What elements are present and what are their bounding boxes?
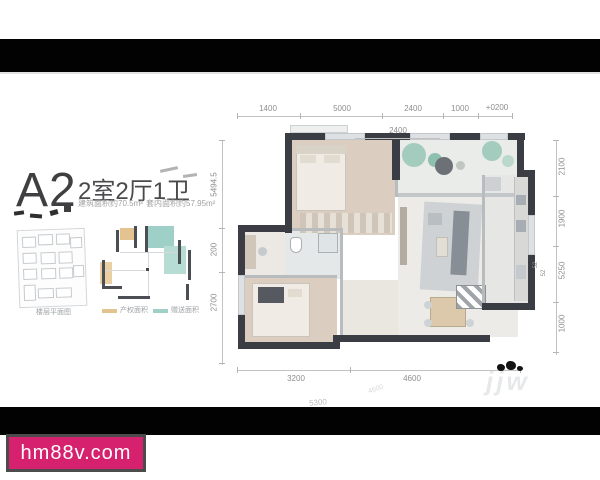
partition <box>285 228 343 231</box>
dim-tick <box>382 113 383 119</box>
coffee-table <box>436 237 448 257</box>
ghost-watermark: jjw <box>486 366 530 397</box>
site-plan-thumbnail <box>17 228 88 308</box>
plant <box>482 141 502 161</box>
key-wall <box>102 260 105 286</box>
fridge <box>485 177 501 191</box>
site-unit-box <box>38 288 54 299</box>
teal-area-patch <box>164 246 186 274</box>
key-dot <box>146 268 149 271</box>
dim-tick <box>553 196 559 197</box>
dim-label: 2400 <box>380 126 416 135</box>
watermark-box: hm88v.com <box>6 434 146 472</box>
site-unit-box <box>70 237 82 248</box>
site-unit-box <box>22 237 36 248</box>
key-wall <box>102 286 122 289</box>
dim-label: 1900 <box>558 203 567 235</box>
dim-label: 1400 <box>250 104 286 113</box>
site-unit-box <box>38 234 53 246</box>
dim-label: 2400 <box>395 104 431 113</box>
wall-segment <box>238 342 340 349</box>
master-bed-headboard <box>296 145 346 154</box>
dim-line-bottom <box>237 370 520 371</box>
toilet <box>290 237 302 253</box>
dim-label-small: 52 <box>533 257 539 273</box>
dim-label: 200 <box>210 236 219 264</box>
bottom-black-bar <box>0 407 600 435</box>
dim-label: 1000 <box>444 104 476 113</box>
dim-label: 5000 <box>322 104 362 113</box>
dim-tick <box>237 367 238 373</box>
key-line <box>105 270 145 271</box>
top-black-bar <box>0 39 600 72</box>
wall-segment <box>517 170 535 177</box>
dim-label: 2700 <box>210 287 219 319</box>
site-unit-box <box>73 265 84 277</box>
dim-label: 5494.5 <box>210 167 219 203</box>
key-wall <box>188 250 191 280</box>
dim-tick <box>553 246 559 247</box>
site-unit-box <box>24 285 37 301</box>
site-unit-box <box>22 253 36 264</box>
screenshot-root: A2 2室2厅1卫 建筑面积约70.5m² 套内面积约57.95m² 楼层平面图 <box>0 0 600 480</box>
site-unit-box <box>59 267 73 278</box>
key-wall <box>178 240 181 264</box>
hallway-floor <box>340 280 398 335</box>
key-line <box>148 252 149 296</box>
armchair <box>428 213 442 225</box>
dim-tick <box>219 272 225 273</box>
desk <box>244 235 256 269</box>
site-unit-box <box>56 233 70 244</box>
partition <box>340 230 343 335</box>
dim-tick <box>553 140 559 141</box>
dim-tick <box>553 352 559 353</box>
window <box>238 275 245 315</box>
key-wall <box>134 226 137 248</box>
partition <box>245 275 337 278</box>
site-unit-box <box>40 252 55 265</box>
sofa <box>450 211 469 276</box>
window <box>528 215 535 255</box>
bay-window <box>290 125 348 133</box>
dim-tick <box>478 113 479 119</box>
area-inner-label: 套内面积约57.95m² <box>146 198 215 209</box>
site-unit-box <box>41 268 56 280</box>
legend-label-tan: 产权面积 <box>120 305 148 315</box>
dim-line-top-inner <box>355 138 440 139</box>
teal-area-patch <box>148 226 174 248</box>
legend-label-teal: 赠送面积 <box>171 305 199 315</box>
key-wall <box>186 284 189 300</box>
dining-chair <box>466 319 474 327</box>
legend-swatch-teal <box>153 309 168 313</box>
terrace-table <box>435 157 453 175</box>
shower <box>318 233 338 253</box>
wall-segment <box>238 225 292 232</box>
dim-label: 5250 <box>558 255 567 287</box>
key-wall <box>116 230 119 252</box>
dim-tick <box>237 113 238 119</box>
dining-chair <box>424 319 432 327</box>
dim-label-small: 52 <box>541 265 547 281</box>
partition <box>482 175 485 303</box>
key-wall <box>118 296 150 299</box>
pillow <box>324 155 340 163</box>
dim-tick <box>512 113 513 119</box>
dim-tick <box>350 367 351 373</box>
plant <box>502 155 514 167</box>
dim-tick <box>443 113 444 119</box>
dim-tick <box>219 363 225 364</box>
dim-label: +0200 <box>478 103 516 112</box>
unit-key-plan-thumbnail <box>100 224 192 304</box>
floor-plan <box>230 125 542 375</box>
site-unit-box <box>23 269 37 280</box>
ghost-dim-label: 4600 <box>358 381 394 399</box>
wall-segment <box>285 133 292 233</box>
pillow <box>300 155 316 163</box>
site-plan-caption: 楼层平面图 <box>36 307 71 317</box>
terrace-chair <box>456 161 465 170</box>
dining-chair <box>424 301 432 309</box>
sink <box>516 265 526 279</box>
wall-segment <box>333 335 490 342</box>
dim-tick <box>300 113 301 119</box>
window <box>480 133 508 140</box>
wall-pier <box>392 140 400 180</box>
dim-label: 1000 <box>558 308 567 340</box>
key-line <box>120 252 178 253</box>
watermark-text: hm88v.com <box>21 442 132 465</box>
oven <box>516 220 526 232</box>
dim-line-left <box>222 140 223 365</box>
cooktop <box>516 195 526 205</box>
bed-accent-throw <box>258 287 284 303</box>
dim-label: 4600 <box>394 374 430 383</box>
site-unit-box <box>58 251 72 263</box>
tv-cabinet <box>400 207 407 265</box>
legend-swatch-tan <box>102 309 117 313</box>
dim-tick <box>553 302 559 303</box>
dim-line-top <box>237 116 513 117</box>
dim-tick <box>219 140 225 141</box>
unit-code-period <box>64 205 71 212</box>
plant <box>402 143 426 167</box>
dim-label: 3200 <box>278 374 314 383</box>
key-wall <box>145 226 148 252</box>
desk-chair <box>258 247 267 256</box>
dim-label: 2100 <box>558 151 567 183</box>
area-build-label: 建筑面积约70.5m² <box>78 198 143 209</box>
terrace-threshold <box>398 193 518 197</box>
dim-tick <box>219 228 225 229</box>
site-unit-box <box>56 287 72 298</box>
pillow <box>288 289 302 297</box>
top-bar-hairline <box>0 72 600 74</box>
